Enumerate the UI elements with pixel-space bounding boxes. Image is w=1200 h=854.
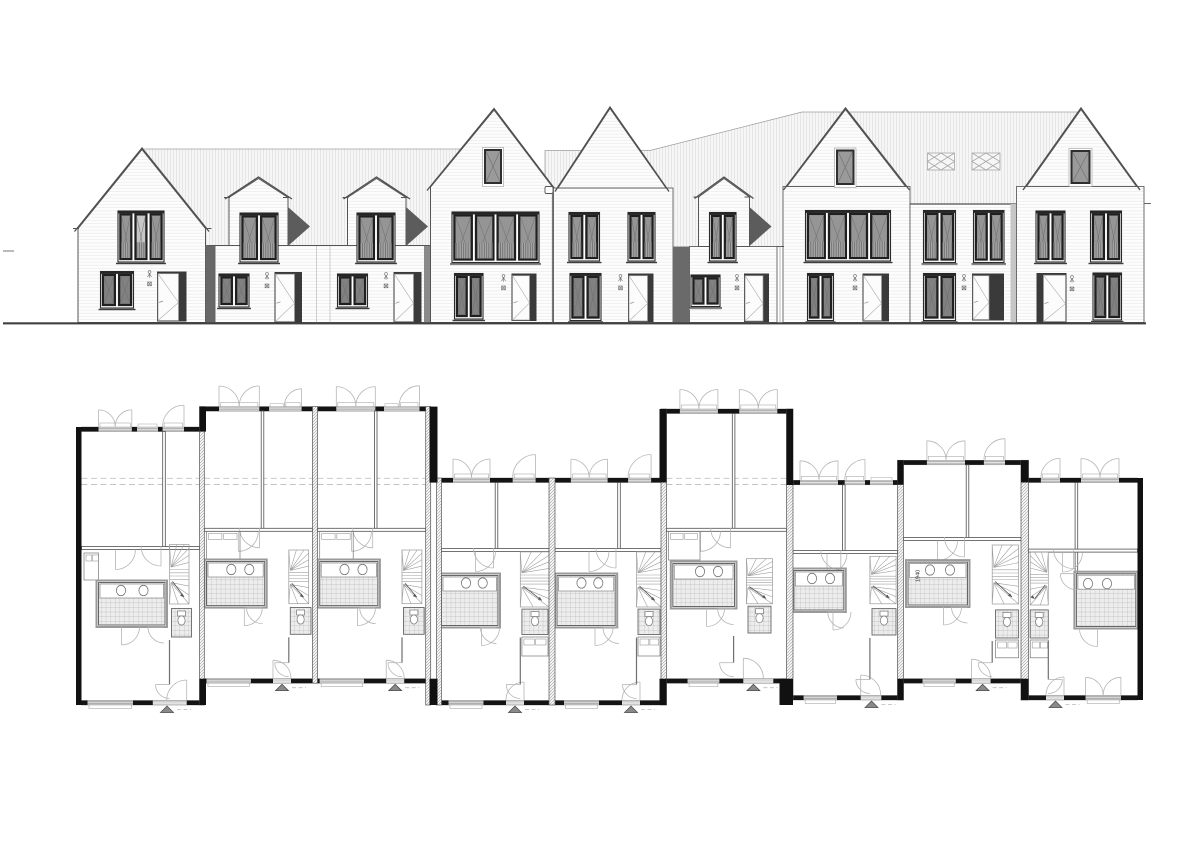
- svg-text:1940: 1940: [916, 570, 922, 582]
